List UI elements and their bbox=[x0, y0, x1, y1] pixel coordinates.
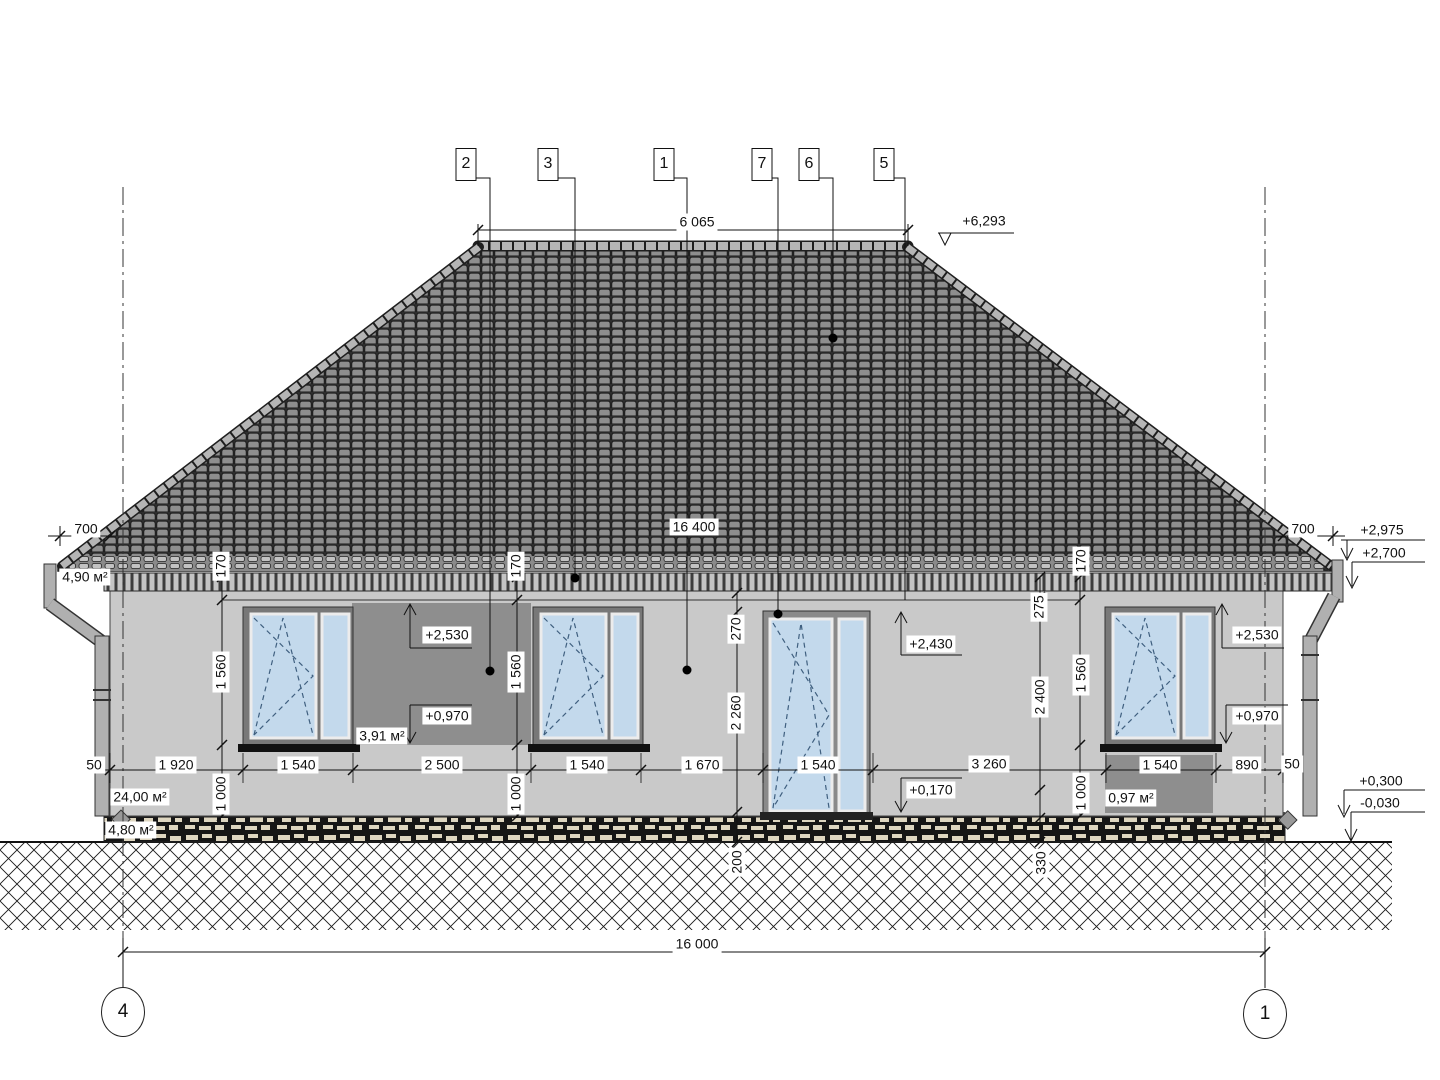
dim-50-right: 50 bbox=[1281, 756, 1303, 773]
dim-eaves-16400: 16 400 bbox=[670, 519, 719, 536]
window-middle bbox=[528, 607, 650, 752]
marker-3: 3 bbox=[538, 148, 559, 181]
dim-2500: 2 500 bbox=[421, 757, 462, 774]
dim-1560-left: 1 560 bbox=[213, 651, 230, 692]
dim-1540-window2: 1 540 bbox=[566, 757, 607, 774]
marker-2: 2 bbox=[456, 148, 477, 181]
level-plus-0300: +0,300 bbox=[1356, 773, 1405, 790]
area-panel-3-91: 3,91 м² bbox=[356, 728, 407, 745]
dim-1540-window3: 1 540 bbox=[1139, 757, 1180, 774]
grid-axis-bubble-4: 4 bbox=[101, 987, 145, 1037]
level-plus-0970-left: +0,970 bbox=[422, 708, 471, 725]
marker-7: 7 bbox=[752, 148, 773, 181]
level-minus-0030: -0,030 bbox=[1357, 795, 1403, 812]
dim-270-door: 270 bbox=[728, 614, 745, 643]
dim-1920: 1 920 bbox=[155, 757, 196, 774]
window-right bbox=[1100, 607, 1222, 752]
level-plus-2700: +2,700 bbox=[1359, 545, 1408, 562]
cornice-band bbox=[104, 573, 1334, 591]
window-sill bbox=[528, 744, 650, 752]
dim-1670: 1 670 bbox=[681, 757, 722, 774]
area-wall-24-00: 24,00 м² bbox=[110, 789, 169, 806]
dim-ridge-6065: 6 065 bbox=[676, 214, 717, 231]
dim-170-right: 170 bbox=[1073, 546, 1090, 575]
level-plus-0170: +0,170 bbox=[906, 782, 955, 799]
drawing-graphics bbox=[0, 0, 1440, 1080]
dim-1540-door: 1 540 bbox=[797, 757, 838, 774]
dim-50-left: 50 bbox=[83, 757, 105, 774]
grid-axis-bubble-1: 1 bbox=[1243, 989, 1287, 1039]
dim-1560-mid: 1 560 bbox=[508, 651, 525, 692]
dim-170-mid: 170 bbox=[508, 551, 525, 580]
level-plus-2530-left: +2,530 bbox=[422, 627, 471, 644]
level-plus-2530-right: +2,530 bbox=[1232, 627, 1281, 644]
dim-3260: 3 260 bbox=[968, 756, 1009, 773]
ground-hatch bbox=[0, 842, 1392, 930]
dim-1000-right: 1 000 bbox=[1073, 772, 1090, 813]
dim-overhang-700-left: 700 bbox=[71, 521, 100, 538]
level-plus-2975: +2,975 bbox=[1357, 522, 1406, 539]
marker-1: 1 bbox=[654, 148, 675, 181]
eaves-tile-row bbox=[70, 556, 1323, 571]
dim-2260-door: 2 260 bbox=[728, 692, 745, 733]
dim-200-ground: 200 bbox=[729, 847, 746, 876]
dim-1000-mid: 1 000 bbox=[508, 773, 525, 814]
door-threshold bbox=[760, 812, 873, 820]
dim-170-left: 170 bbox=[213, 551, 230, 580]
window-left bbox=[238, 607, 360, 752]
dim-2400: 2 400 bbox=[1032, 676, 1049, 717]
dim-total-16000: 16 000 bbox=[673, 936, 722, 953]
elevation-drawing: 231765 6 065+6,29316 400700700+2,975+2,7… bbox=[0, 0, 1440, 1080]
dim-1000-left: 1 000 bbox=[213, 773, 230, 814]
level-plus-0970-right: +0,970 bbox=[1232, 708, 1281, 725]
area-plinth-4-80: 4,80 м² bbox=[105, 822, 156, 839]
window-sill bbox=[1100, 744, 1222, 752]
grid-axis-number: 1 bbox=[1260, 1003, 1271, 1025]
dim-330-ground: 330 bbox=[1033, 848, 1050, 877]
marker-6: 6 bbox=[799, 148, 820, 181]
downspout-right bbox=[1279, 560, 1343, 829]
dim-890: 890 bbox=[1232, 757, 1261, 774]
grid-axis-number: 4 bbox=[118, 1001, 129, 1023]
area-roof-4-90: 4,90 м² bbox=[59, 569, 110, 586]
marker-5: 5 bbox=[874, 148, 895, 181]
dim-1540-window1: 1 540 bbox=[277, 757, 318, 774]
area-panel-0-97: 0,97 м² bbox=[1105, 790, 1156, 807]
level-plus-6293: +6,293 bbox=[959, 213, 1008, 230]
dim-overhang-700-right: 700 bbox=[1288, 521, 1317, 538]
level-plus-2430: +2,430 bbox=[906, 636, 955, 653]
entrance-door bbox=[760, 611, 873, 820]
dim-1560-right: 1 560 bbox=[1073, 654, 1090, 695]
window-sill bbox=[238, 744, 360, 752]
dim-275: 275 bbox=[1031, 592, 1048, 621]
